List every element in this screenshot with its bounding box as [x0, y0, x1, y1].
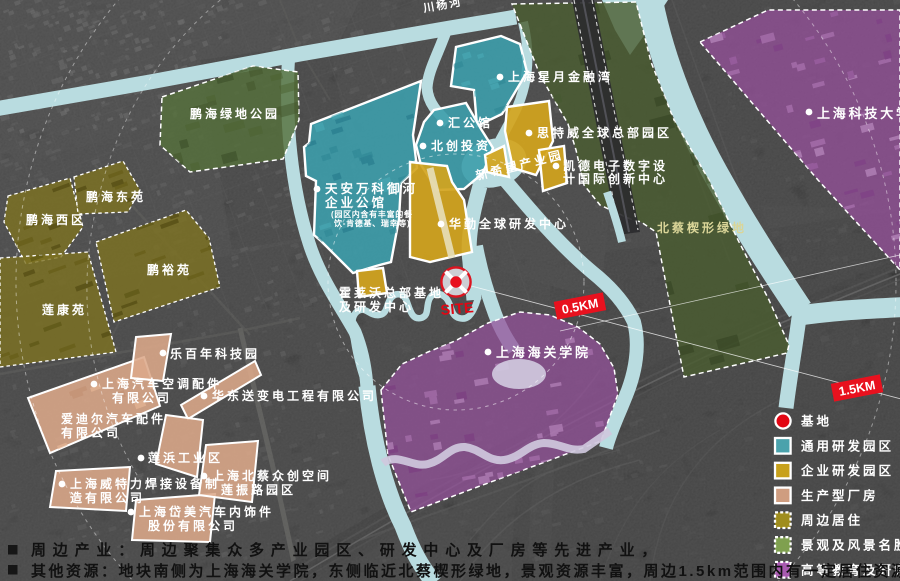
svg-text:企业研发园区: 企业研发园区 — [800, 463, 894, 478]
svg-text:汇公馆: 汇公馆 — [448, 115, 493, 130]
svg-text:北创投资: 北创投资 — [431, 138, 491, 153]
svg-text:企业公馆: 企业公馆 — [324, 195, 387, 210]
svg-text:有限公司: 有限公司 — [112, 390, 172, 405]
svg-text:通用研发园区: 通用研发园区 — [801, 438, 894, 453]
svg-text:北蔡楔形绿地: 北蔡楔形绿地 — [657, 220, 747, 235]
svg-text:乐百年科技园: 乐百年科技园 — [170, 346, 260, 361]
svg-text:天安万科御河: 天安万科御河 — [325, 181, 418, 196]
svg-text:其他资源：地块南侧为上海海关学院，东侧临近北蔡楔形绿地，景观: 其他资源：地块南侧为上海海关学院，东侧临近北蔡楔形绿地，景观资源丰富，周边1.5… — [31, 562, 900, 580]
svg-text:上海汽车空调配件: 上海汽车空调配件 — [102, 376, 222, 391]
svg-text:爱迪尔汽车配件: 爱迪尔汽车配件 — [61, 411, 166, 426]
svg-text:上海威特力焊接设备制: 上海威特力焊接设备制 — [70, 476, 220, 491]
svg-text:(园区内含有丰富的餐: (园区内含有丰富的餐 — [331, 209, 413, 219]
svg-text:股份有限公司: 股份有限公司 — [148, 518, 238, 533]
svg-text:基地: 基地 — [800, 414, 832, 429]
svg-text:鹏海东苑: 鹏海东苑 — [86, 189, 146, 204]
svg-text:莲康苑: 莲康苑 — [42, 302, 87, 317]
svg-text:莲浜工业区: 莲浜工业区 — [148, 450, 223, 465]
svg-text:上海科技大学: 上海科技大学 — [817, 106, 900, 121]
svg-text:思特威全球总部园区: 思特威全球总部园区 — [537, 125, 672, 140]
svg-text:霍莱沃总部基地: 霍莱沃总部基地 — [339, 285, 444, 300]
svg-text:上海岱美汽车内饰件: 上海岱美汽车内饰件 — [139, 504, 274, 519]
svg-text:及研发中心: 及研发中心 — [339, 299, 414, 314]
svg-text:景观及风景名胜: 景观及风景名胜 — [801, 538, 900, 553]
svg-text:SITE: SITE — [440, 300, 475, 319]
svg-text:鹏裕苑: 鹏裕苑 — [147, 262, 192, 277]
svg-text:华东送变电工程有限公司: 华东送变电工程有限公司 — [212, 388, 377, 403]
svg-text:上海北蔡众创空间: 上海北蔡众创空间 — [212, 468, 332, 483]
svg-text:饮-肯德基、瑞幸等): 饮-肯德基、瑞幸等) — [333, 218, 410, 228]
svg-text:有限公司: 有限公司 — [61, 425, 121, 440]
svg-text:鹏海绿地公园: 鹏海绿地公园 — [190, 106, 280, 121]
svg-text:鹏海西区: 鹏海西区 — [26, 212, 86, 227]
svg-text:上海星月金融湾: 上海星月金融湾 — [508, 69, 613, 84]
svg-text:上海海关学院: 上海海关学院 — [496, 345, 591, 360]
svg-text:凯德电子数字设: 凯德电子数字设 — [563, 158, 668, 173]
svg-text:周边居住: 周边居住 — [801, 513, 863, 528]
svg-text:造有限公司: 造有限公司 — [70, 490, 145, 505]
svg-text:计国际创新中心: 计国际创新中心 — [563, 171, 668, 186]
svg-text:生产型厂房: 生产型厂房 — [801, 488, 879, 503]
svg-text:莲振路园区: 莲振路园区 — [221, 482, 296, 497]
svg-text:周边产业：周边聚集众多产业园区、研发中心及厂房等先进产业，: 周边产业：周边聚集众多产业园区、研发中心及厂房等先进产业， — [31, 541, 663, 559]
svg-text:华勤全球研发中心: 华勤全球研发中心 — [449, 216, 569, 231]
